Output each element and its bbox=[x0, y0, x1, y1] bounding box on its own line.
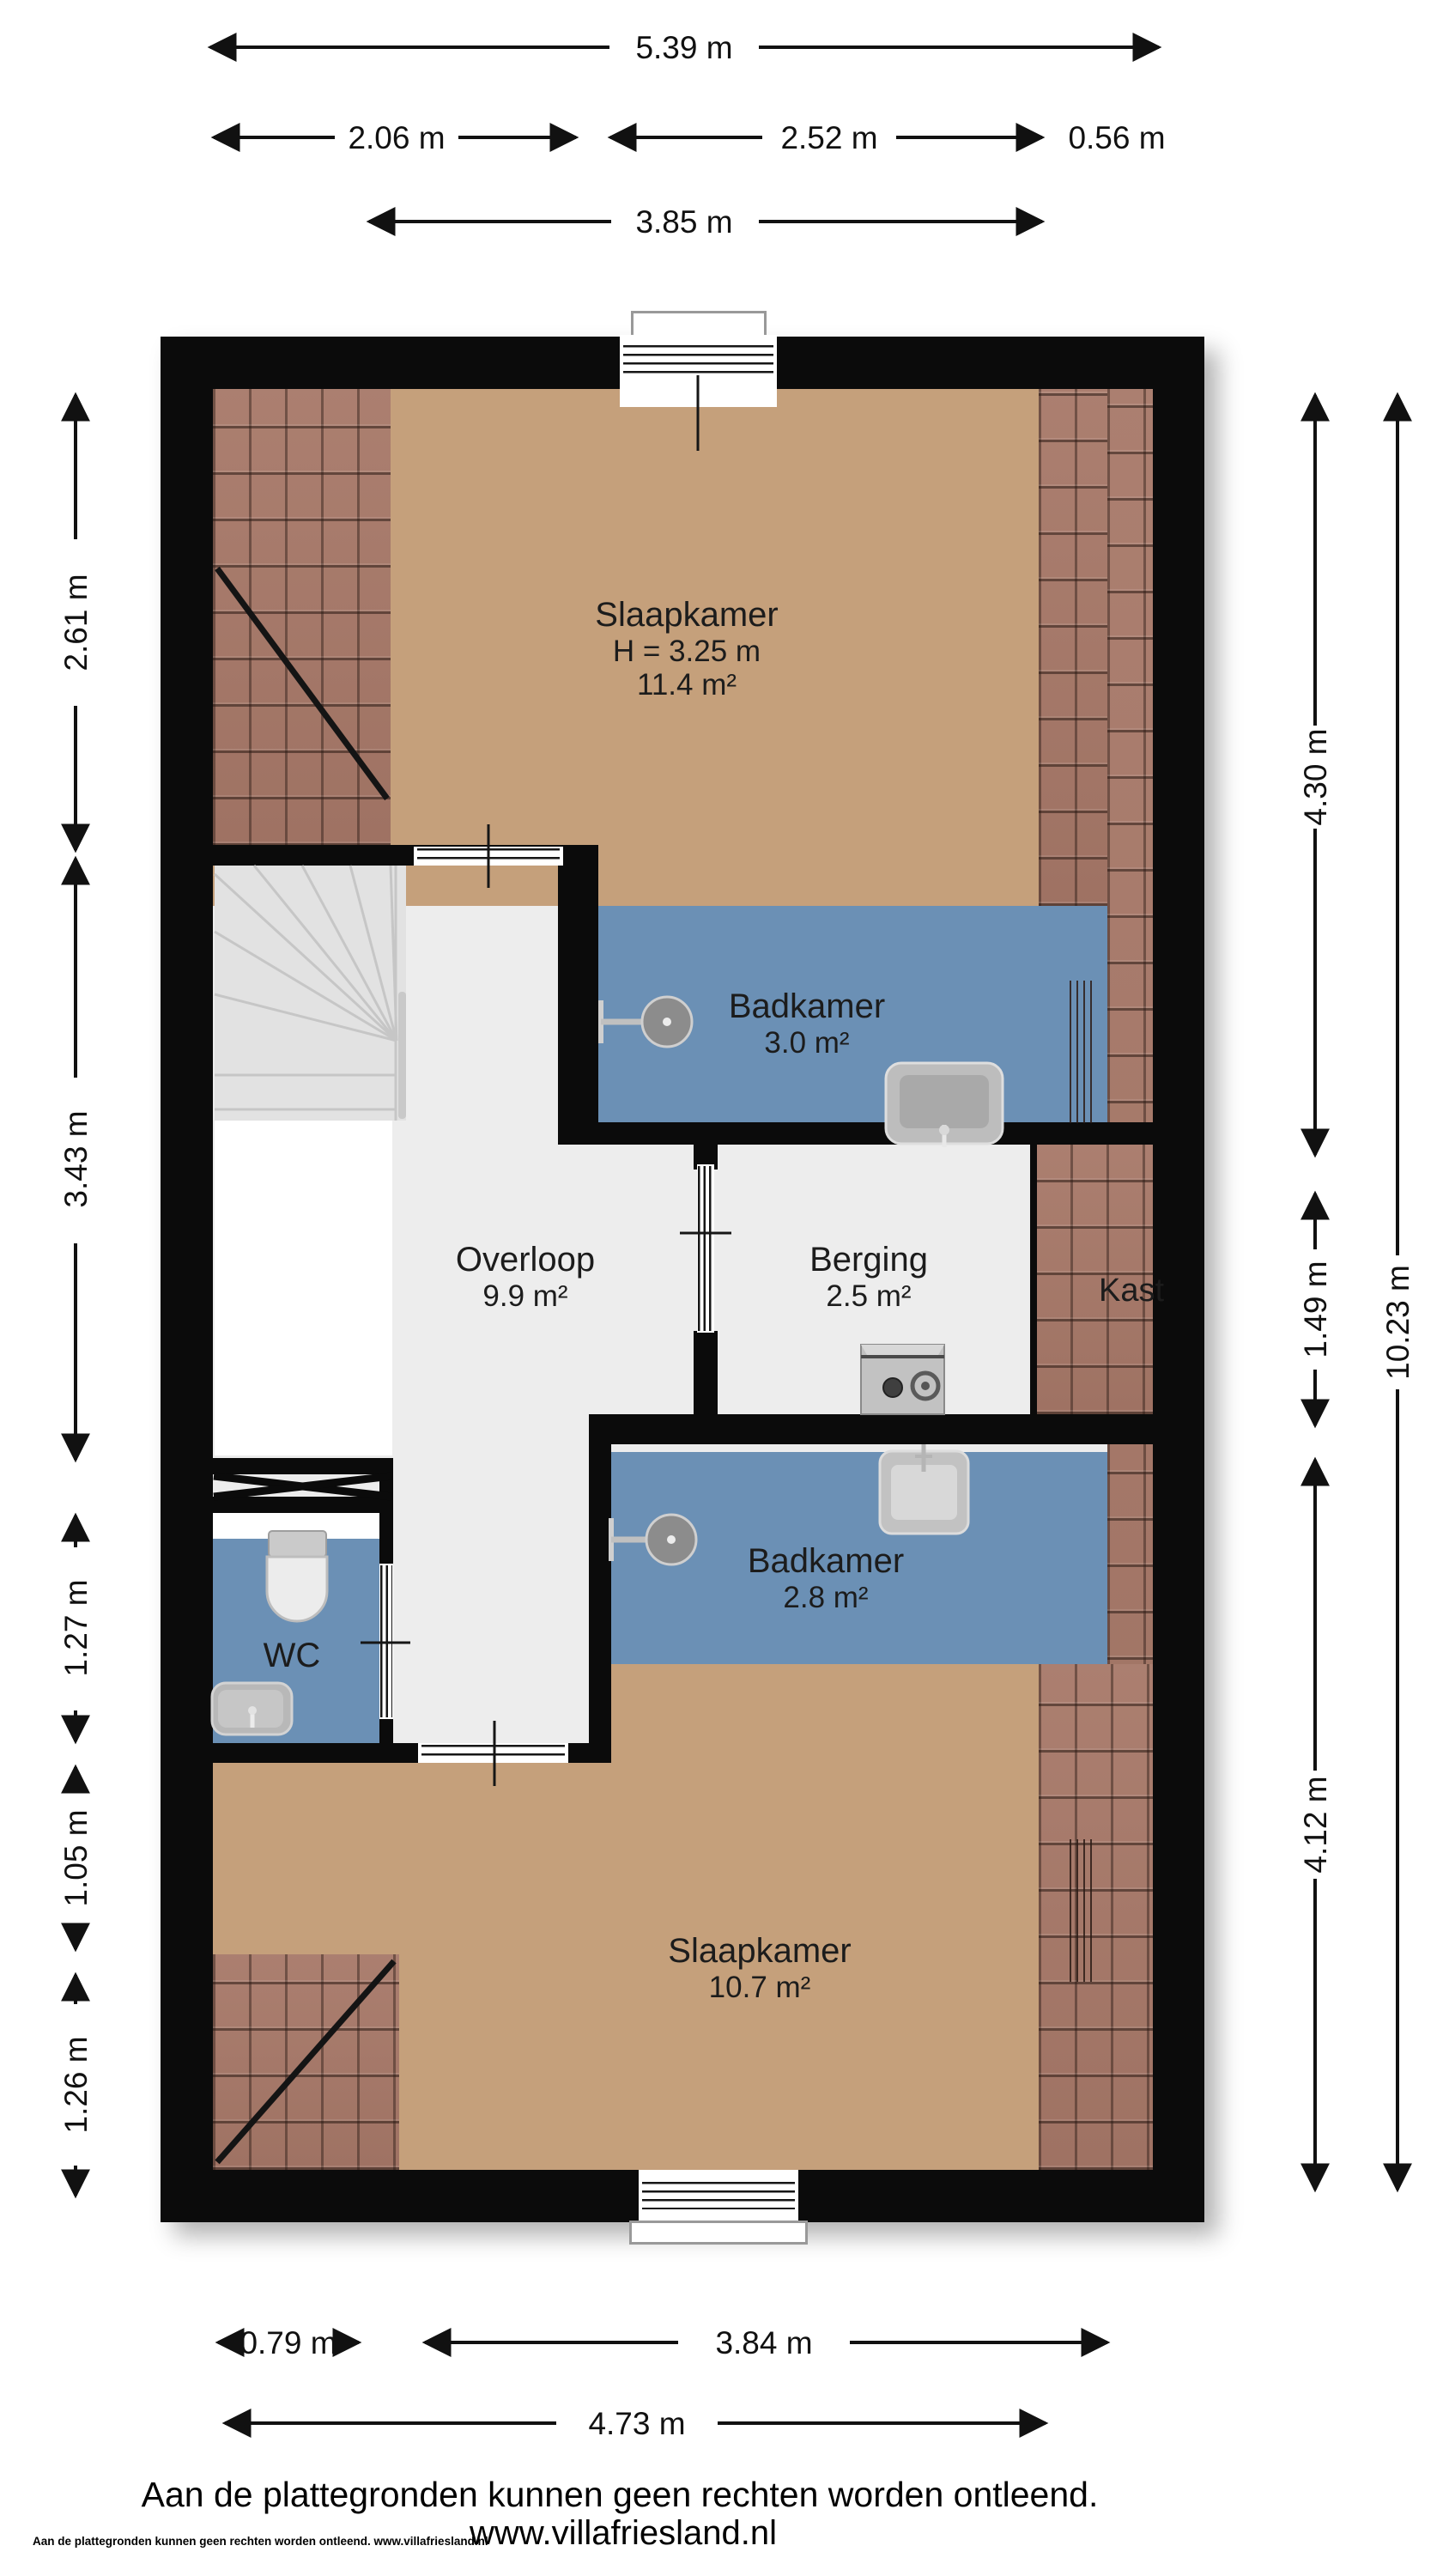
roof-slope-bottom-left bbox=[213, 1954, 399, 2170]
svg-text:3.84 m: 3.84 m bbox=[715, 2325, 812, 2360]
door-wc bbox=[379, 1564, 393, 1719]
door-overloop-berging bbox=[697, 1164, 714, 1333]
room-area: 9.9 m² bbox=[456, 1279, 595, 1313]
label-slaapkamer-boven: Slaapkamer H = 3.25 m 11.4 m² bbox=[595, 596, 778, 702]
window-interior-bedroom bbox=[414, 847, 563, 866]
svg-text:0.56 m: 0.56 m bbox=[1068, 120, 1165, 155]
svg-text:3.85 m: 3.85 m bbox=[635, 204, 732, 240]
svg-text:1.05 m: 1.05 m bbox=[58, 1809, 94, 1906]
wall-bathroom1-left bbox=[558, 845, 598, 1145]
door-overloop-berging-hatch bbox=[698, 1166, 713, 1331]
room-name: Slaapkamer bbox=[595, 596, 778, 635]
roof-slope-right-bottom bbox=[1039, 1664, 1153, 2170]
label-badkamer-onder: Badkamer 2.8 m² bbox=[748, 1542, 904, 1614]
stairs-area bbox=[215, 866, 406, 1121]
svg-text:5.39 m: 5.39 m bbox=[635, 30, 732, 65]
svg-text:4.12 m: 4.12 m bbox=[1298, 1776, 1333, 1873]
label-wc: WC bbox=[264, 1637, 321, 1675]
dim-right-total: 10.23 m bbox=[1380, 395, 1416, 2190]
room-area: 11.4 m² bbox=[595, 668, 778, 702]
dim-left-4: 1.05 m bbox=[58, 1767, 94, 1949]
stair-void bbox=[215, 1121, 392, 1455]
dim-bottom-left: 0.79 m bbox=[218, 2325, 359, 2360]
dim-left-5: 1.26 m bbox=[58, 1975, 94, 2196]
wall-bathroom1-bottom bbox=[558, 1122, 1153, 1145]
fineprint-text: Aan de plattegronden kunnen geen rechten… bbox=[33, 2535, 488, 2548]
door-bedroom-bottom bbox=[418, 1743, 568, 1763]
dim-top-total: 5.39 m bbox=[210, 30, 1159, 65]
dim-bottom-total: 4.73 m bbox=[225, 2406, 1046, 2441]
dim-top-left: 2.06 m bbox=[214, 120, 576, 155]
room-area: 3.0 m² bbox=[729, 1026, 885, 1060]
dim-left-2: 3.43 m bbox=[58, 859, 94, 1460]
dim-right-1: 4.30 m bbox=[1298, 395, 1333, 1155]
floor-wc-entry bbox=[212, 1510, 379, 1539]
window-sill-bottom bbox=[629, 2221, 808, 2245]
door-bedroom-bottom-hatch bbox=[421, 1745, 565, 1761]
svg-text:1.26 m: 1.26 m bbox=[58, 2036, 94, 2133]
svg-text:2.61 m: 2.61 m bbox=[58, 574, 94, 671]
room-area: 2.8 m² bbox=[748, 1581, 904, 1614]
website-text: www.villafriesland.nl bbox=[470, 2514, 777, 2553]
label-kast: Kast bbox=[1099, 1273, 1164, 1309]
wall-bottom-right bbox=[568, 1743, 611, 1763]
window-bottom-glazing bbox=[642, 2182, 795, 2209]
disclaimer-text: Aan de plattegronden kunnen geen rechten… bbox=[142, 2475, 1099, 2515]
label-overloop: Overloop 9.9 m² bbox=[456, 1241, 595, 1313]
dim-top-inner: 3.85 m bbox=[369, 204, 1042, 240]
window-top bbox=[620, 335, 777, 407]
wall-outer-left bbox=[161, 337, 213, 2222]
room-name: Badkamer bbox=[748, 1542, 904, 1581]
wall-berging-bottom bbox=[589, 1414, 1153, 1444]
roof-slope-top-left bbox=[213, 389, 391, 846]
room-area: 2.5 m² bbox=[809, 1279, 928, 1313]
room-name: Overloop bbox=[456, 1241, 595, 1279]
wall-divider-stub-bottom bbox=[694, 1331, 718, 1414]
room-name: Kast bbox=[1099, 1273, 1164, 1309]
room-name: Berging bbox=[809, 1241, 928, 1279]
void-band-bottom-bar bbox=[212, 1497, 393, 1513]
window-top-glazing bbox=[623, 345, 773, 374]
room-name: WC bbox=[264, 1637, 321, 1675]
label-slaapkamer-onder: Slaapkamer 10.7 m² bbox=[668, 1932, 851, 2004]
void-band-top-bar bbox=[212, 1458, 393, 1474]
svg-text:2.06 m: 2.06 m bbox=[348, 120, 445, 155]
room-name: Slaapkamer bbox=[668, 1932, 851, 1971]
svg-text:0.79 m: 0.79 m bbox=[239, 2325, 336, 2360]
void-band bbox=[212, 1458, 393, 1513]
svg-text:10.23 m: 10.23 m bbox=[1380, 1265, 1416, 1380]
dim-top-middle: 2.52 m bbox=[610, 120, 1042, 155]
label-berging: Berging 2.5 m² bbox=[809, 1241, 928, 1313]
svg-text:1.27 m: 1.27 m bbox=[58, 1579, 94, 1676]
svg-text:3.43 m: 3.43 m bbox=[58, 1110, 94, 1207]
svg-text:4.30 m: 4.30 m bbox=[1298, 728, 1333, 825]
window-bottom bbox=[639, 2170, 798, 2222]
room-name: Badkamer bbox=[729, 987, 885, 1026]
dim-left-3: 1.27 m bbox=[58, 1516, 94, 1741]
wall-bathroom2-left bbox=[589, 1444, 611, 1763]
svg-text:1.49 m: 1.49 m bbox=[1298, 1261, 1333, 1358]
svg-text:4.73 m: 4.73 m bbox=[588, 2406, 685, 2441]
window-interior-glazing bbox=[417, 848, 560, 864]
dim-right-3: 4.12 m bbox=[1298, 1460, 1333, 2190]
room-height: H = 3.25 m bbox=[595, 635, 778, 668]
wall-kast-divider bbox=[1030, 1145, 1037, 1414]
svg-text:2.52 m: 2.52 m bbox=[780, 120, 877, 155]
dim-left-1: 2.61 m bbox=[58, 395, 94, 850]
door-wc-hatch bbox=[380, 1565, 392, 1717]
room-area: 10.7 m² bbox=[668, 1971, 851, 2004]
dim-right-2: 1.49 m bbox=[1298, 1194, 1333, 1425]
dim-top-right: 0.56 m bbox=[1068, 120, 1165, 155]
dim-bottom-middle: 3.84 m bbox=[425, 2325, 1107, 2360]
label-badkamer-boven: Badkamer 3.0 m² bbox=[729, 987, 885, 1060]
wall-bottom-left bbox=[212, 1743, 418, 1763]
